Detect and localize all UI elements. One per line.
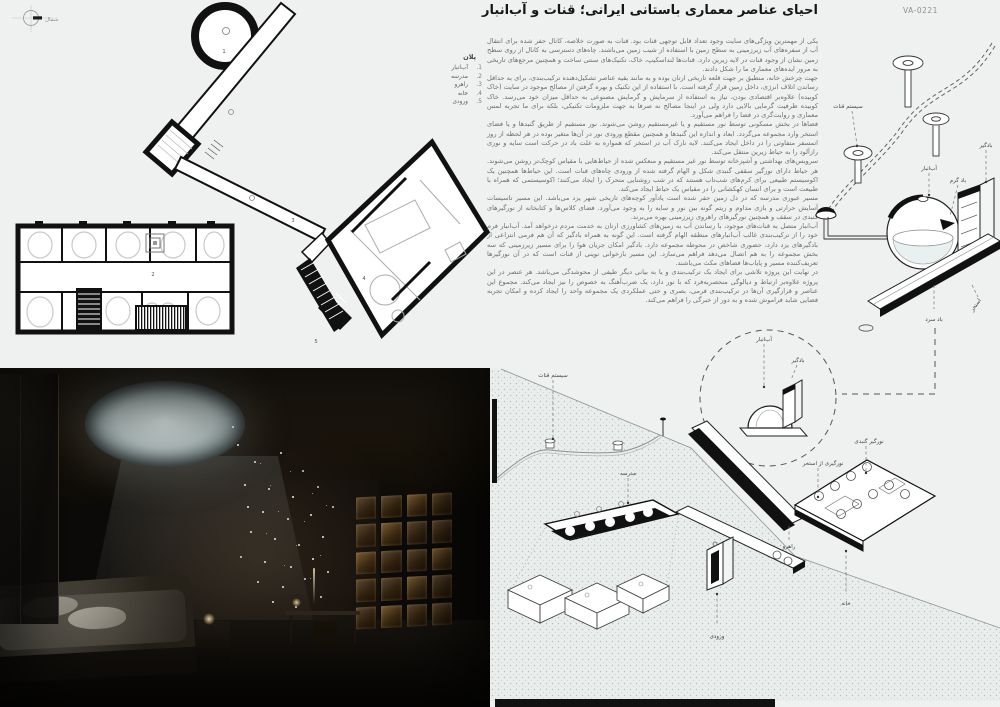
plan-mark-1: 1 xyxy=(222,49,225,55)
label-dome-skylight: نورگیر گنبدی xyxy=(854,438,884,445)
label-corridor: راهرو xyxy=(782,544,796,550)
page-title: احیای عناصر معماری باستانی ایرانی؛ قنات … xyxy=(482,3,818,18)
legend-item: .1آب‌انبار xyxy=(420,64,482,73)
interior-render-photo xyxy=(0,368,490,707)
legend-item: .3راهرو xyxy=(420,81,482,90)
wall-niches-grid xyxy=(356,492,452,629)
plan-house: 4 xyxy=(318,142,487,335)
label-qanat-system: سیستم قنات xyxy=(538,373,568,379)
project-code: VA-0221 xyxy=(903,6,938,15)
nightstand xyxy=(196,621,230,663)
label-qanat-system: سیستم قنات xyxy=(833,104,863,110)
presentation-board: احیای عناصر معماری باستانی ایرانی؛ قنات … xyxy=(0,0,1000,707)
paragraph: یکی از مهمترین ویژگی‌های سایت وجود تعداد… xyxy=(487,37,818,74)
label-pool-light: نورگیری از استخر xyxy=(802,460,844,467)
qanat-outlet xyxy=(816,207,888,239)
glass-partition xyxy=(0,374,59,624)
label-house: خانه xyxy=(841,601,851,607)
paragraph: در نهایت این پروژه تلاشی برای ایجاد یک ت… xyxy=(487,268,818,305)
paragraph: جهت چرخش خانه، منطبق بر جهت قلعه تاریخی … xyxy=(487,74,818,120)
paragraph: سرویس‌های بهداشتی و آشپزخانه توسط نور غی… xyxy=(487,157,818,194)
legend-item: .4خانه xyxy=(420,90,482,99)
site-isometric-diagram: سیستم قنات مدرسه آب‌انبار بادگیر نورگیر … xyxy=(485,328,1000,707)
legend-item: .5ورودی xyxy=(420,98,482,107)
label-entrance: ورودی xyxy=(710,634,725,640)
plan-legend: پلان .1آب‌انبار .2مدرسه .3راهرو .4خانه .… xyxy=(420,53,482,107)
desk xyxy=(286,611,360,615)
label-windcatcher: بادگیر xyxy=(791,357,805,364)
paragraph: آب‌انبار متصل به قنات‌های موجود، با رسان… xyxy=(487,222,818,268)
north-compass-icon: شمال xyxy=(12,5,59,32)
chair xyxy=(314,622,338,652)
label-cold-wind: باد سرد xyxy=(925,317,943,323)
plan-mark-3: 3 xyxy=(291,218,294,224)
label-windcatcher: بادگیر xyxy=(979,142,993,149)
detail-link-line xyxy=(842,328,935,394)
plan-mark-2: 2 xyxy=(151,272,154,278)
label-cistern: آب‌انبار xyxy=(920,165,937,172)
north-label: شمال xyxy=(45,17,59,23)
label-pool: استخر xyxy=(969,297,983,313)
article-text: یکی از مهمترین ویژگی‌های سایت وجود تعداد… xyxy=(487,37,818,305)
paragraph: مسیر عبوری مدرسه که در دل زمین حفر شده ا… xyxy=(487,194,818,222)
legend-item: .2مدرسه xyxy=(420,73,482,82)
nightstand-lamp-glow xyxy=(203,613,215,625)
desk-lamp-glow xyxy=(292,598,301,607)
section-cut-edge xyxy=(492,399,497,483)
oculus-skylight xyxy=(85,381,245,467)
site-cistern xyxy=(740,380,807,436)
plan-mark-5: 5 xyxy=(314,339,317,345)
plan-entrance-ramp: 5 xyxy=(296,258,348,345)
plan-legend-title: پلان xyxy=(420,53,476,61)
fireflies xyxy=(232,426,234,428)
plan-school: 2 xyxy=(18,221,232,332)
floor-plan-drawing: شمال 1 3 xyxy=(0,0,490,368)
label-cistern: آب‌انبار xyxy=(755,336,772,343)
paragraph: فضاها در بخش مسکونی توسط نور مستقیم و یا… xyxy=(487,120,818,157)
label-warm-wind: باد گرم xyxy=(950,177,967,184)
qanat-system-diagram: سیستم قنات آب‌انبار بادگیر باد گرم باد س… xyxy=(812,33,1000,340)
qanat-shaft xyxy=(844,56,949,183)
site-base-strip xyxy=(495,699,775,707)
candle-light xyxy=(313,568,315,604)
fireflies-dim xyxy=(260,463,261,464)
label-school: مدرسه xyxy=(620,471,636,477)
